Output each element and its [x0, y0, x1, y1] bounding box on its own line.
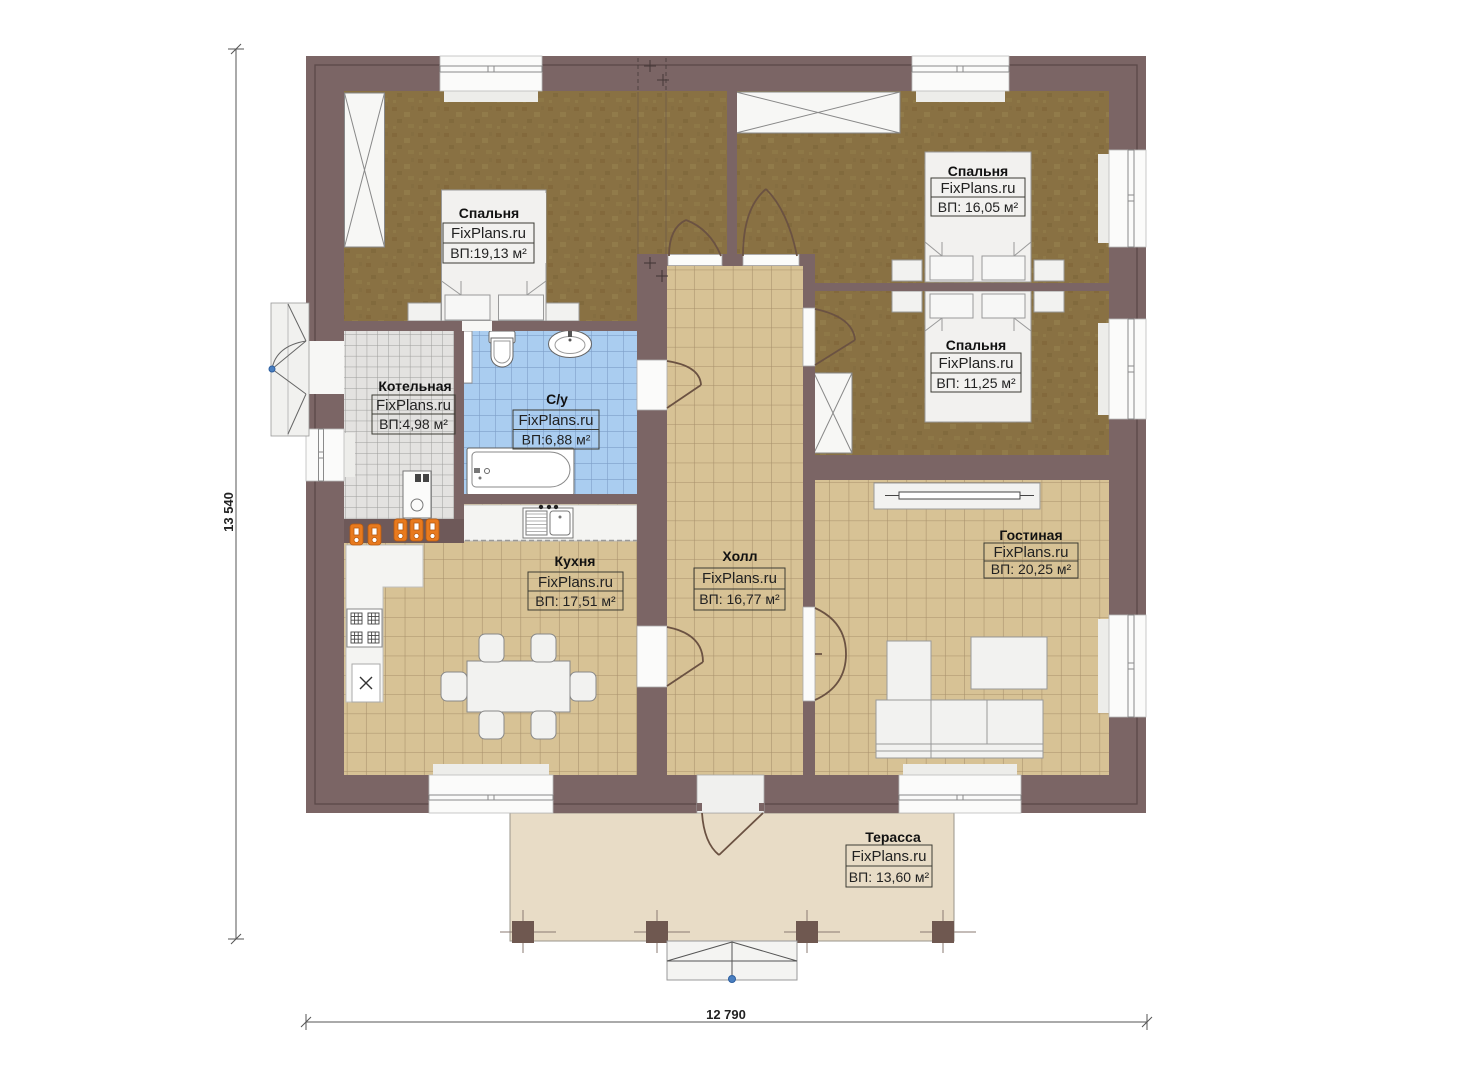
- svg-text:ВП: 11,25 м²: ВП: 11,25 м²: [936, 375, 1016, 391]
- svg-text:Терасса: Терасса: [865, 829, 921, 845]
- svg-text:Гостиная: Гостиная: [999, 527, 1062, 543]
- svg-text:Кухня: Кухня: [555, 553, 596, 569]
- svg-text:С/у: С/у: [546, 391, 568, 407]
- svg-text:ВП: 20,25 м²: ВП: 20,25 м²: [991, 561, 1072, 577]
- svg-text:FixPlans.ru: FixPlans.ru: [702, 570, 777, 587]
- svg-text:FixPlans.ru: FixPlans.ru: [993, 544, 1068, 561]
- svg-text:12 790: 12 790: [706, 1007, 746, 1022]
- svg-text:FixPlans.ru: FixPlans.ru: [940, 180, 1015, 197]
- svg-text:FixPlans.ru: FixPlans.ru: [938, 355, 1013, 372]
- svg-text:FixPlans.ru: FixPlans.ru: [376, 397, 451, 414]
- svg-text:Спальня: Спальня: [946, 337, 1006, 353]
- svg-text:ВП:6,88 м²: ВП:6,88 м²: [522, 432, 591, 448]
- svg-text:FixPlans.ru: FixPlans.ru: [538, 574, 613, 591]
- svg-text:ВП: 16,05 м²: ВП: 16,05 м²: [938, 199, 1019, 215]
- svg-text:ВП: 17,51 м²: ВП: 17,51 м²: [535, 593, 616, 609]
- svg-text:Спальня: Спальня: [948, 163, 1008, 179]
- svg-text:FixPlans.ru: FixPlans.ru: [518, 412, 593, 429]
- svg-text:FixPlans.ru: FixPlans.ru: [451, 225, 526, 242]
- svg-text:FixPlans.ru: FixPlans.ru: [851, 848, 926, 865]
- svg-text:13 540: 13 540: [221, 492, 236, 532]
- svg-text:Котельная: Котельная: [378, 378, 451, 394]
- svg-text:ВП:4,98 м²: ВП:4,98 м²: [379, 416, 448, 432]
- svg-text:Холл: Холл: [722, 548, 757, 564]
- svg-text:Спальня: Спальня: [459, 205, 519, 221]
- svg-text:ВП: 16,77 м²: ВП: 16,77 м²: [699, 591, 780, 607]
- svg-text:ВП: 13,60 м²: ВП: 13,60 м²: [849, 869, 930, 885]
- svg-text:ВП:19,13 м²: ВП:19,13 м²: [450, 245, 527, 261]
